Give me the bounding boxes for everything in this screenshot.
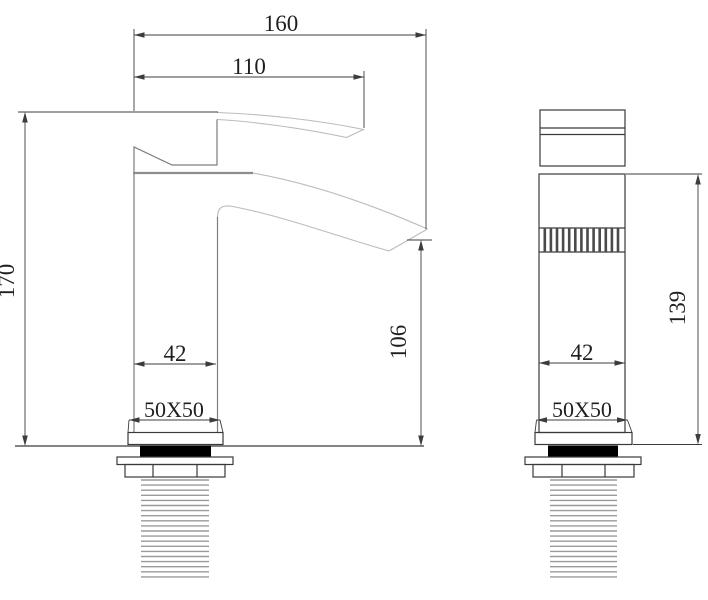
dimension-arrowhead xyxy=(418,436,424,447)
front-base-plate xyxy=(128,433,223,445)
dimension-arrowhead xyxy=(22,112,28,123)
dim-label-spout-height: 106 xyxy=(386,325,411,360)
dimension-arrowhead xyxy=(354,74,365,80)
technical-drawing-canvas: 160 110 170 42 50X50 106 xyxy=(0,0,708,600)
hatch-bar xyxy=(562,228,565,252)
dimension-arrowhead xyxy=(416,32,427,38)
hatch-bar xyxy=(544,228,547,252)
hatch-bar xyxy=(617,228,620,252)
dimension-arrowhead xyxy=(134,32,145,38)
dimension-arrowhead xyxy=(539,360,550,366)
hatch-bar xyxy=(568,228,571,252)
front-dimensions xyxy=(18,29,432,442)
dim-label-side-body-height: 139 xyxy=(665,291,690,326)
front-flange xyxy=(117,457,233,465)
dimension-arrowhead xyxy=(418,240,424,251)
front-gasket xyxy=(140,446,211,457)
side-flange xyxy=(525,457,641,465)
dimension-arrowhead xyxy=(134,361,145,367)
side-body xyxy=(539,174,625,433)
front-view: 160 110 170 42 50X50 106 xyxy=(0,11,432,577)
dim-label-overall-height: 170 xyxy=(0,264,19,299)
dim-label-front-base-plate: 50X50 xyxy=(144,397,204,422)
dim-label-overall-width: 160 xyxy=(264,11,299,36)
hatch-bar xyxy=(586,228,589,252)
front-hex-nut-facets xyxy=(153,465,197,478)
front-lever-blade xyxy=(217,113,364,138)
hatch-bar xyxy=(580,228,583,252)
hatch-bar xyxy=(598,228,601,252)
dimension-arrowhead xyxy=(206,361,217,367)
side-handle-cap xyxy=(540,110,625,166)
side-threaded-shank xyxy=(550,480,617,577)
front-spout-upper-curve xyxy=(253,173,428,229)
dimension-arrowhead xyxy=(617,417,628,423)
front-hex-nut xyxy=(125,465,225,478)
faucet-dimension-drawing: 160 110 170 42 50X50 106 xyxy=(0,0,708,600)
dimension-arrowhead xyxy=(210,417,221,423)
side-base-plate xyxy=(535,433,632,445)
hatch-bar xyxy=(605,228,608,252)
side-view: 42 50X50 139 xyxy=(525,110,702,577)
dimension-arrowhead xyxy=(134,74,145,80)
side-gasket xyxy=(548,446,618,457)
hatch-bar xyxy=(574,228,577,252)
dim-label-front-body-width: 42 xyxy=(164,341,187,366)
front-dimension-arrows xyxy=(22,32,426,446)
hatch-bar xyxy=(611,228,614,252)
dim-label-side-body-depth: 42 xyxy=(571,340,594,365)
dimension-arrowhead xyxy=(22,436,28,447)
dimension-arrowhead xyxy=(695,174,701,185)
hatch-bar xyxy=(592,228,595,252)
dimension-arrowhead xyxy=(537,417,548,423)
side-hex-nut xyxy=(533,465,634,478)
dimension-arrowhead xyxy=(695,434,701,445)
front-body-step-and-edges xyxy=(134,120,218,433)
side-hex-nut-facets xyxy=(562,465,605,478)
side-spout-band-hatch xyxy=(544,228,620,252)
front-spout-lower-curve xyxy=(218,206,390,251)
dimension-arrowhead xyxy=(615,360,626,366)
front-threaded-shank xyxy=(141,480,209,577)
dim-label-side-base-plate: 50X50 xyxy=(552,397,612,422)
hatch-bar xyxy=(550,228,553,252)
side-handle-cap-grooves xyxy=(540,128,625,135)
dim-label-spout-projection: 110 xyxy=(232,54,266,79)
hatch-bar xyxy=(556,228,559,252)
